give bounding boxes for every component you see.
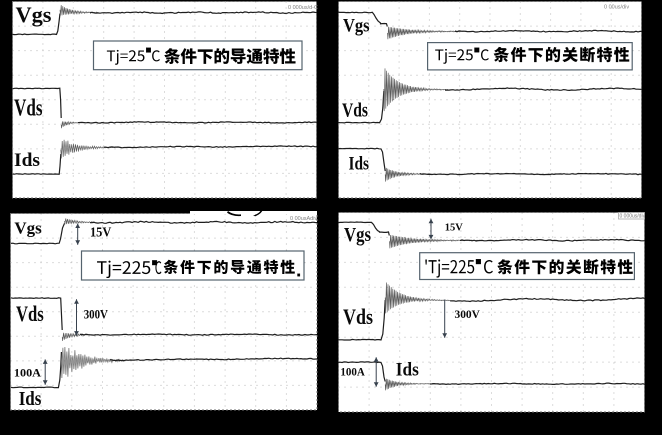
svg-text:0 000us/d-C: 0 000us/d-C xyxy=(288,5,318,11)
svg-text:15V: 15V xyxy=(90,224,112,239)
svg-text:Vgs: Vgs xyxy=(14,218,42,237)
svg-text:300V: 300V xyxy=(455,307,481,321)
svg-text:Ids: Ids xyxy=(14,151,40,171)
svg-text:Vds: Vds xyxy=(16,301,44,326)
svg-text:Ids: Ids xyxy=(349,155,370,175)
svg-text:Vds: Vds xyxy=(343,304,373,329)
svg-text:Ids: Ids xyxy=(396,360,419,380)
svg-text:Vds: Vds xyxy=(342,99,368,121)
svg-text:Vgs: Vgs xyxy=(344,224,371,246)
svg-text:0 00usAdiv: 0 00usAdiv xyxy=(290,216,317,222)
svg-text:0 000us/div: 0 000us/div xyxy=(620,214,646,220)
svg-text:0 00us/div: 0 00us/div xyxy=(604,5,629,11)
svg-text:100A: 100A xyxy=(14,366,42,379)
svg-text:Vds: Vds xyxy=(14,96,43,122)
svg-text:100A: 100A xyxy=(340,364,365,378)
svg-text:15V: 15V xyxy=(445,223,464,234)
svg-text:Vgs: Vgs xyxy=(343,16,370,37)
svg-text:300V: 300V xyxy=(84,307,109,322)
svg-text:Ids: Ids xyxy=(19,388,42,410)
svg-text:Vgs: Vgs xyxy=(16,2,52,27)
